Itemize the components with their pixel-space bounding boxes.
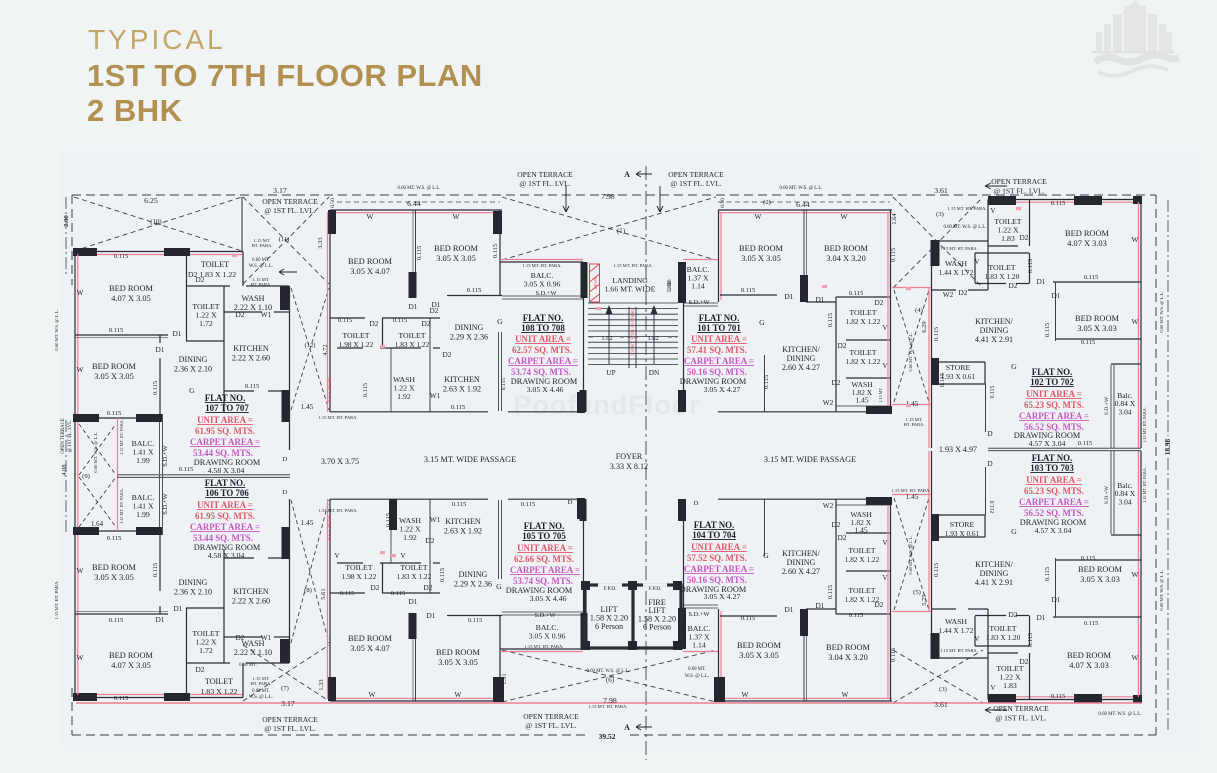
svg-text:3.17: 3.17: [273, 186, 287, 195]
svg-text:1.45: 1.45: [906, 492, 919, 501]
svg-text:D2: D2: [370, 319, 379, 328]
svg-text:W1: W1: [261, 633, 272, 642]
svg-text:W2: W2: [823, 398, 834, 407]
svg-text:DINING: DINING: [980, 569, 1009, 578]
svg-text:G: G: [1011, 527, 1017, 536]
svg-text:3.05 X 4.46: 3.05 X 4.46: [527, 385, 564, 394]
svg-text:DINING: DINING: [787, 558, 816, 567]
svg-text:W: W: [77, 653, 84, 662]
svg-text:101 TO 701: 101 TO 701: [697, 323, 741, 333]
svg-text:D2: D2: [422, 319, 431, 328]
svg-text:0.115: 0.115: [468, 617, 483, 624]
svg-text:1.15 MT. HT. PARA.: 1.15 MT. HT. PARA.: [522, 263, 561, 268]
svg-text:DINING: DINING: [787, 354, 816, 363]
svg-text:1.15 MT. HT. PARA.: 1.15 MT. HT. PARA.: [318, 508, 357, 513]
svg-text:0.115: 0.115: [1081, 339, 1096, 346]
svg-text:1.15 MT. HT. PARA.: 1.15 MT. HT. PARA.: [524, 644, 563, 649]
svg-text:0.115: 0.115: [890, 248, 897, 262]
svg-text:2.63 X 1.92: 2.63 X 1.92: [444, 527, 482, 536]
svg-text:D1: D1: [427, 611, 436, 620]
svg-text:D1: D1: [432, 300, 441, 309]
svg-text:UNIT AREA =: UNIT AREA =: [1026, 475, 1082, 485]
svg-text:W: W: [842, 690, 849, 699]
svg-text:V: V: [975, 259, 980, 266]
svg-text:1.45: 1.45: [301, 518, 314, 527]
svg-text:KITCHEN: KITCHEN: [445, 517, 481, 526]
svg-text:0.115: 0.115: [741, 287, 756, 294]
svg-text:0.60 MT. W.S. @ L.L.: 0.60 MT. W.S. @ L.L.: [908, 535, 913, 574]
svg-text:TOILET: TOILET: [989, 624, 1016, 633]
svg-text:1.15 MT. HT. PARA.: 1.15 MT. HT. PARA.: [119, 419, 124, 455]
svg-text:3.05 X 4.27: 3.05 X 4.27: [704, 385, 741, 394]
svg-text:TOILET: TOILET: [848, 546, 875, 555]
svg-text:0.60 MT.: 0.60 MT.: [688, 667, 706, 672]
svg-text:102 TO 702: 102 TO 702: [1030, 377, 1074, 387]
svg-text:2.60 X 4.27: 2.60 X 4.27: [782, 363, 820, 372]
svg-text:W: W: [367, 212, 374, 221]
svg-text:6 Person: 6 Person: [595, 622, 623, 631]
svg-text:D1: D1: [1052, 595, 1061, 604]
svg-text:0.115: 0.115: [763, 375, 770, 389]
svg-text:(10): (10): [150, 219, 161, 226]
svg-text:3.05 X 3.05: 3.05 X 3.05: [436, 254, 476, 263]
svg-text:1.92: 1.92: [397, 392, 411, 401]
svg-text:KITCHEN: KITCHEN: [233, 344, 269, 353]
svg-text:D1: D1: [156, 615, 165, 624]
svg-text:DINING: DINING: [980, 326, 1009, 335]
svg-text:CARPET AREA =: CARPET AREA =: [190, 522, 260, 532]
svg-text:0.115: 0.115: [1081, 555, 1096, 562]
svg-text:HT. PARA.: HT. PARA.: [250, 282, 271, 287]
svg-text:CARPET AREA =: CARPET AREA =: [684, 564, 754, 574]
svg-text:0.115: 0.115: [114, 695, 129, 702]
svg-text:2.36 X 2.10: 2.36 X 2.10: [174, 365, 212, 374]
svg-text:FLAT NO.: FLAT NO.: [694, 520, 735, 530]
svg-text:1.15 MT. HT. PARA.: 1.15 MT. HT. PARA.: [940, 246, 977, 251]
svg-text:2.36 X 2.10: 2.36 X 2.10: [174, 588, 212, 597]
svg-text:65.23 SQ. MTS.: 65.23 SQ. MTS.: [1024, 486, 1084, 496]
svg-text:(8): (8): [304, 587, 312, 594]
svg-text:53.44 SQ. MTS.: 53.44 SQ. MTS.: [193, 448, 253, 458]
svg-text:D2: D2: [443, 350, 452, 359]
svg-text:0.115: 0.115: [1078, 440, 1093, 447]
svg-text:0.115: 0.115: [452, 501, 467, 508]
svg-text:7.98: 7.98: [601, 192, 615, 201]
svg-text:2.22 X 2.60: 2.22 X 2.60: [232, 597, 270, 606]
svg-text:S.D.+W: S.D.+W: [1104, 396, 1110, 415]
svg-text:6.44: 6.44: [407, 199, 421, 208]
svg-text:W: W: [77, 365, 84, 374]
svg-text:W1: W1: [261, 310, 272, 319]
svg-text:3.05 X 3.05: 3.05 X 3.05: [741, 254, 781, 263]
svg-text:4.07 X 3.03: 4.07 X 3.03: [1067, 239, 1107, 248]
svg-text:1.83 X 1.22: 1.83 X 1.22: [201, 687, 238, 696]
svg-text:OPEN TERRACE: OPEN TERRACE: [668, 170, 724, 179]
svg-text:W: W: [1132, 653, 1139, 662]
svg-text:6.29: 6.29: [921, 321, 928, 332]
svg-text:1.14: 1.14: [691, 282, 705, 291]
svg-text:0.115: 0.115: [107, 410, 122, 417]
svg-text:6.25: 6.25: [144, 196, 158, 205]
svg-text:WASH: WASH: [945, 259, 967, 268]
svg-text:OPEN TERRACE: OPEN TERRACE: [517, 170, 573, 179]
svg-text:3.33 X 8.12: 3.33 X 8.12: [610, 462, 648, 471]
svg-text:1.44 X 1.72: 1.44 X 1.72: [939, 626, 974, 635]
svg-text:W: W: [841, 212, 848, 221]
svg-text:D2: D2: [1009, 610, 1018, 619]
svg-text:D2: D2: [875, 298, 884, 307]
svg-text:1.45: 1.45: [301, 402, 314, 411]
svg-text:(5): (5): [913, 589, 921, 596]
svg-text:53.74 SQ. MTS.: 53.74 SQ. MTS.: [513, 576, 573, 586]
svg-text:1.15 MT. HT. PARA.: 1.15 MT. HT. PARA.: [613, 263, 652, 268]
svg-text:HT. PARA.: HT. PARA.: [903, 422, 924, 427]
svg-text:V: V: [883, 540, 888, 547]
svg-text:D: D: [987, 429, 992, 438]
svg-text:5.61: 5.61: [320, 588, 327, 599]
svg-text:105 TO 705: 105 TO 705: [522, 531, 566, 541]
svg-text:(1): (1): [617, 228, 625, 235]
svg-text:DN: DN: [649, 369, 660, 377]
svg-text:W: W: [455, 690, 462, 699]
svg-text:56.52 SQ. MTS.: 56.52 SQ. MTS.: [1024, 508, 1084, 518]
svg-text:V: V: [883, 363, 888, 370]
svg-text:0.60 MT.: 0.60 MT.: [252, 258, 270, 263]
svg-text:(7): (7): [281, 685, 289, 692]
svg-text:1.83 X 1.20: 1.83 X 1.20: [985, 272, 1020, 281]
svg-text:BED ROOM: BED ROOM: [109, 651, 154, 660]
svg-text:0.115: 0.115: [890, 648, 897, 662]
svg-text:1.44 X 1.72: 1.44 X 1.72: [939, 268, 974, 277]
svg-text:3.05 X 0.96: 3.05 X 0.96: [524, 279, 561, 288]
svg-text:@ 1ST FL. LVL.: @ 1ST FL. LVL.: [264, 724, 315, 733]
svg-text:1.99: 1.99: [136, 456, 150, 465]
svg-text:0.115: 0.115: [827, 313, 834, 327]
svg-text:W.S. @ L.L.: W.S. @ L.L.: [249, 695, 273, 700]
svg-text:DINING: DINING: [455, 323, 484, 332]
svg-text:1.50 MT. WIDE LANDING: 1.50 MT. WIDE LANDING: [630, 309, 635, 356]
svg-text:3.05 X 0.96: 3.05 X 0.96: [529, 631, 566, 640]
svg-text:2.60 X 4.27: 2.60 X 4.27: [782, 567, 820, 576]
svg-text:1.99: 1.99: [136, 510, 150, 519]
svg-text:CARPET AREA =: CARPET AREA =: [1019, 411, 1089, 421]
svg-text:1.66 MT. WIDE: 1.66 MT. WIDE: [605, 285, 656, 294]
svg-text:4.58 X 3.04: 4.58 X 3.04: [208, 466, 245, 475]
svg-text:0.50: 0.50: [330, 198, 336, 208]
svg-text:@ 1ST FL. LVL.: @ 1ST FL. LVL.: [519, 179, 570, 188]
svg-text:3.61: 3.61: [934, 186, 948, 195]
svg-text:0.115: 0.115: [990, 385, 996, 398]
svg-text:D2: D2: [838, 533, 847, 542]
svg-text:HT. PARA.: HT. PARA.: [251, 243, 272, 248]
svg-text:D2: D2: [1009, 281, 1018, 290]
svg-text:DINING: DINING: [459, 570, 488, 579]
svg-text:0.115: 0.115: [1084, 620, 1099, 627]
svg-text:BED ROOM: BED ROOM: [436, 648, 481, 657]
svg-text:V: V: [335, 553, 340, 560]
svg-text:50.16 SQ. MTS.: 50.16 SQ. MTS.: [687, 367, 747, 377]
svg-text:OPEN TERRACE: OPEN TERRACE: [993, 704, 1049, 713]
svg-text:0.115: 0.115: [741, 615, 756, 622]
svg-text:0.115: 0.115: [1051, 200, 1066, 207]
svg-text:1.83 X 1.20: 1.83 X 1.20: [986, 633, 1021, 642]
svg-text:1.14: 1.14: [692, 641, 706, 650]
svg-text:0.60 MT. W.S. @ L.L.: 0.60 MT. W.S. @ L.L.: [944, 225, 987, 230]
svg-text:KITCHEN/: KITCHEN/: [782, 549, 821, 558]
svg-text:0.115: 0.115: [338, 317, 353, 324]
svg-text:W.S. @ L.L.: W.S. @ L.L.: [685, 674, 709, 679]
svg-text:UNIT AREA =: UNIT AREA =: [197, 500, 253, 510]
svg-text:0.115: 0.115: [179, 466, 194, 473]
svg-text:6.44: 6.44: [796, 200, 810, 209]
svg-text:3.70 X 3.75: 3.70 X 3.75: [321, 457, 359, 466]
svg-text:1.83 X 1.22: 1.83 X 1.22: [397, 572, 432, 581]
svg-text:W: W: [369, 690, 376, 699]
svg-text:(2): (2): [763, 199, 771, 206]
svg-text:WASH: WASH: [945, 617, 967, 626]
svg-text:D1: D1: [174, 604, 183, 613]
svg-text:BED ROOM: BED ROOM: [737, 641, 782, 650]
svg-text:1.15 MT. HT. PARA.: 1.15 MT. HT. PARA.: [891, 488, 930, 493]
svg-text:OPEN TERRACE: OPEN TERRACE: [991, 177, 1047, 186]
svg-text:4.72: 4.72: [322, 344, 329, 355]
svg-text:D2: D2: [1020, 233, 1029, 242]
svg-text:STORE: STORE: [946, 363, 971, 372]
svg-text:0.115: 0.115: [1084, 274, 1099, 281]
svg-text:(3): (3): [936, 211, 944, 218]
svg-text:D: D: [694, 500, 699, 507]
svg-text:1.82 X 1.22: 1.82 X 1.22: [846, 357, 881, 366]
svg-text:BED ROOM: BED ROOM: [739, 244, 784, 253]
svg-text:D2: D2: [959, 288, 968, 297]
svg-text:S.D.+W: S.D.+W: [534, 612, 556, 619]
svg-text:UNIT AREA =: UNIT AREA =: [517, 543, 573, 553]
svg-text:1.15 MT. HT. PARA.: 1.15 MT. HT. PARA.: [1142, 467, 1147, 503]
svg-text:G: G: [496, 582, 502, 591]
svg-text:@ 1ST FL. LVL.: @ 1ST FL. LVL.: [68, 420, 73, 453]
svg-text:FLAT NO.: FLAT NO.: [524, 521, 565, 531]
svg-text:1.15 MT. HT. PARA.: 1.15 MT. HT. PARA.: [54, 580, 59, 619]
svg-text:0.115: 0.115: [393, 317, 408, 324]
svg-text:53.74 SQ. MTS.: 53.74 SQ. MTS.: [511, 367, 571, 377]
svg-text:(3): (3): [939, 686, 947, 693]
svg-text:BED ROOM: BED ROOM: [434, 244, 479, 253]
svg-text:V: V: [991, 208, 996, 215]
svg-text:2.22 X 2.60: 2.22 X 2.60: [232, 354, 270, 363]
svg-text:3.61: 3.61: [934, 700, 948, 709]
svg-text:CARPET AREA =: CARPET AREA =: [508, 356, 578, 366]
svg-text:KITCHEN/: KITCHEN/: [975, 317, 1014, 326]
svg-text:CARPET AREA =: CARPET AREA =: [510, 565, 580, 575]
svg-text:V: V: [883, 575, 888, 582]
svg-text:BED ROOM: BED ROOM: [348, 257, 393, 266]
svg-text:2.29 X 2.36: 2.29 X 2.36: [450, 333, 488, 342]
svg-text:61.95 SQ. MTS.: 61.95 SQ. MTS.: [195, 511, 255, 521]
svg-text:(12): (12): [305, 342, 316, 349]
svg-text:0.60 MT.: 0.60 MT.: [239, 663, 257, 668]
svg-text:CARPET AREA =: CARPET AREA =: [1019, 497, 1089, 507]
svg-text:TOILET: TOILET: [848, 586, 875, 595]
svg-text:0.115: 0.115: [849, 290, 864, 297]
svg-text:106 TO 706: 106 TO 706: [205, 488, 249, 498]
svg-text:G: G: [189, 386, 195, 395]
svg-text:D1: D1: [785, 292, 794, 301]
svg-text:0.115: 0.115: [501, 378, 507, 391]
svg-text:S.D.+W: S.D.+W: [162, 492, 169, 514]
svg-text:0.115: 0.115: [521, 501, 536, 508]
svg-text:1.62: 1.62: [647, 335, 658, 342]
svg-text:0.115: 0.115: [114, 253, 129, 260]
svg-text:1.83: 1.83: [1003, 681, 1017, 690]
svg-text:2.63 X 1.92: 2.63 X 1.92: [443, 385, 481, 394]
svg-text:W1: W1: [430, 515, 441, 524]
svg-text:BED ROOM: BED ROOM: [109, 284, 154, 293]
svg-text:D1: D1: [173, 329, 182, 338]
svg-text:@ 1ST FL. LVL.: @ 1ST FL. LVL.: [264, 206, 315, 215]
svg-text:DINING: DINING: [179, 578, 208, 587]
svg-text:V: V: [991, 685, 996, 692]
svg-text:W: W: [1132, 317, 1139, 326]
svg-text:1ST TO 7TH FLOOR PLAN: 1ST TO 7TH FLOOR PLAN: [87, 58, 483, 93]
svg-text:TOILET: TOILET: [400, 563, 427, 572]
svg-text:0.115: 0.115: [152, 381, 159, 395]
svg-text:6 Person: 6 Person: [643, 623, 671, 632]
svg-text:D2: D2: [371, 583, 380, 592]
svg-text:1.93 X 0.61: 1.93 X 0.61: [945, 529, 980, 538]
svg-text:0.115: 0.115: [109, 617, 124, 624]
svg-text:(9): (9): [82, 473, 90, 480]
svg-text:1.98 X 1.22: 1.98 X 1.22: [342, 572, 377, 581]
svg-text:(4): (4): [915, 307, 923, 314]
svg-text:4.07 X 3.05: 4.07 X 3.05: [111, 661, 151, 670]
svg-text:104 TO 704: 104 TO 704: [692, 530, 736, 540]
svg-text:UNIT AREA =: UNIT AREA =: [1026, 389, 1082, 399]
svg-text:4.07 X 3.03: 4.07 X 3.03: [1069, 661, 1109, 670]
svg-text:KITCHEN/: KITCHEN/: [782, 345, 821, 354]
svg-text:103 TO 703: 103 TO 703: [1030, 463, 1074, 473]
svg-text:UNIT AREA =: UNIT AREA =: [515, 334, 571, 344]
svg-text:D2: D2: [832, 520, 841, 529]
svg-text:1.93 X 4.97: 1.93 X 4.97: [939, 445, 977, 454]
svg-text:0.115: 0.115: [340, 590, 355, 597]
svg-text:PoofandFloor: PoofandFloor: [513, 390, 700, 420]
svg-text:W.S. @ L.L.: W.S. @ L.L.: [249, 264, 273, 269]
svg-text:3.04 X 3.20: 3.04 X 3.20: [826, 254, 866, 263]
svg-text:TOILET: TOILET: [342, 331, 369, 340]
svg-text:@ 1ST FL. LVL.: @ 1ST FL. LVL.: [995, 714, 1046, 723]
svg-text:D: D: [987, 459, 992, 468]
svg-text:D2: D2: [426, 536, 435, 545]
svg-text:0.60 MT. W.S. @ L.L.: 0.60 MT. W.S. @ L.L.: [908, 332, 913, 371]
svg-text:D2: D2: [196, 665, 205, 674]
svg-text:5.79: 5.79: [921, 594, 928, 605]
svg-text:D1: D1: [816, 601, 825, 610]
svg-text:1.33: 1.33: [318, 679, 325, 690]
svg-text:@ 1ST FL. LVL.: @ 1ST FL. LVL.: [993, 187, 1044, 196]
svg-text:0.115: 0.115: [109, 327, 124, 334]
svg-text:BED ROOM: BED ROOM: [1078, 565, 1123, 574]
svg-text:D: D: [283, 456, 288, 463]
svg-text:D1: D1: [409, 302, 418, 311]
svg-text:D1: D1: [156, 345, 165, 354]
svg-text:W: W: [77, 566, 84, 575]
svg-text:0.60 MT. W.S. @ L.L.: 0.60 MT. W.S. @ L.L.: [1099, 712, 1142, 717]
svg-text:CARPET AREA =: CARPET AREA =: [684, 356, 754, 366]
svg-text:0.115: 0.115: [1051, 693, 1066, 700]
svg-text:TOILET: TOILET: [345, 563, 372, 572]
svg-text:0.115: 0.115: [362, 383, 369, 397]
svg-text:FLAT NO.: FLAT NO.: [1032, 453, 1073, 463]
svg-text:50.16 SQ. MTS.: 50.16 SQ. MTS.: [687, 575, 747, 585]
svg-text:3.05 X 3.03: 3.05 X 3.03: [1080, 575, 1120, 584]
svg-text:BED ROOM: BED ROOM: [1067, 651, 1112, 660]
svg-text:3.04: 3.04: [1118, 407, 1131, 416]
svg-text:F.P.D.: F.P.D.: [604, 586, 617, 592]
svg-text:D1: D1: [816, 295, 825, 304]
svg-text:G: G: [497, 317, 503, 326]
svg-text:2.29 X 2.36: 2.29 X 2.36: [454, 580, 492, 589]
svg-text:1.72: 1.72: [199, 319, 213, 328]
svg-text:D2: D2: [236, 633, 245, 642]
svg-text:@ 1ST FL. LVL.: @ 1ST FL. LVL.: [525, 721, 576, 730]
svg-text:HT. PARA.: HT. PARA.: [250, 681, 271, 686]
svg-text:TOILET: TOILET: [849, 308, 876, 317]
svg-text:3.05 X 4.07: 3.05 X 4.07: [350, 644, 390, 653]
svg-text:0.60 MT. W.S. @ L.L.: 0.60 MT. W.S. @ L.L.: [780, 186, 823, 191]
svg-text:FOYER: FOYER: [616, 452, 643, 461]
svg-text:UNIT AREA =: UNIT AREA =: [197, 415, 253, 425]
svg-text:108 TO 708: 108 TO 708: [521, 323, 565, 333]
svg-text:0.115: 0.115: [1044, 323, 1051, 337]
svg-text:KITCHEN/: KITCHEN/: [975, 560, 1014, 569]
svg-text:R.C.C. BEAM: R.C.C. BEAM: [327, 377, 332, 402]
svg-text:3.15 MT. WIDE PASSAGE: 3.15 MT. WIDE PASSAGE: [764, 455, 856, 464]
svg-text:1.66: 1.66: [666, 281, 673, 293]
svg-text:D2: D2: [196, 275, 205, 284]
svg-text:0.60 MT. W.S. @ L.L.: 0.60 MT. W.S. @ L.L.: [587, 669, 630, 674]
svg-text:FLAT NO.: FLAT NO.: [699, 313, 740, 323]
svg-text:1.82 X 1.22: 1.82 X 1.22: [845, 555, 880, 564]
svg-text:0.60 MT. W.S. @ L.L.: 0.60 MT. W.S. @ L.L.: [1159, 569, 1164, 610]
svg-text:OPEN TERRACE: OPEN TERRACE: [262, 715, 318, 724]
svg-text:65.23 SQ. MTS.: 65.23 SQ. MTS.: [1024, 400, 1084, 410]
svg-text:W: W: [1132, 570, 1139, 579]
svg-text:0.115: 0.115: [939, 373, 946, 387]
svg-text:BED ROOM: BED ROOM: [824, 244, 869, 253]
svg-text:FLAT NO.: FLAT NO.: [1032, 367, 1073, 377]
svg-text:4.41 X 2.91: 4.41 X 2.91: [975, 335, 1013, 344]
svg-text:0.115: 0.115: [1027, 633, 1034, 647]
svg-text:BED ROOM: BED ROOM: [92, 563, 137, 572]
svg-text:1.15 MT. HT. PARA.: 1.15 MT. HT. PARA.: [318, 415, 357, 420]
svg-text:KITCHEN: KITCHEN: [233, 587, 269, 596]
svg-text:1.83 X 1.22: 1.83 X 1.22: [395, 340, 430, 349]
svg-text:BED ROOM: BED ROOM: [826, 643, 871, 652]
svg-text:D2: D2: [832, 378, 841, 387]
svg-text:CARPET AREA =: CARPET AREA =: [190, 437, 260, 447]
svg-text:4.57 X 3.04: 4.57 X 3.04: [1029, 439, 1066, 448]
svg-text:FLAT NO.: FLAT NO.: [205, 393, 246, 403]
svg-text:107 TO 707: 107 TO 707: [205, 403, 249, 413]
svg-text:0.115: 0.115: [451, 404, 466, 411]
svg-text:D2: D2: [424, 583, 433, 592]
svg-text:1.15 MT. HT. PARA.: 1.15 MT. HT. PARA.: [940, 648, 977, 653]
svg-text:D1: D1: [1052, 291, 1061, 300]
svg-text:2.00: 2.00: [63, 215, 70, 226]
svg-text:62.57 SQ. MTS.: 62.57 SQ. MTS.: [512, 345, 572, 355]
svg-text:4.08: 4.08: [61, 464, 68, 475]
svg-text:OPEN TERRACE: OPEN TERRACE: [61, 418, 66, 454]
